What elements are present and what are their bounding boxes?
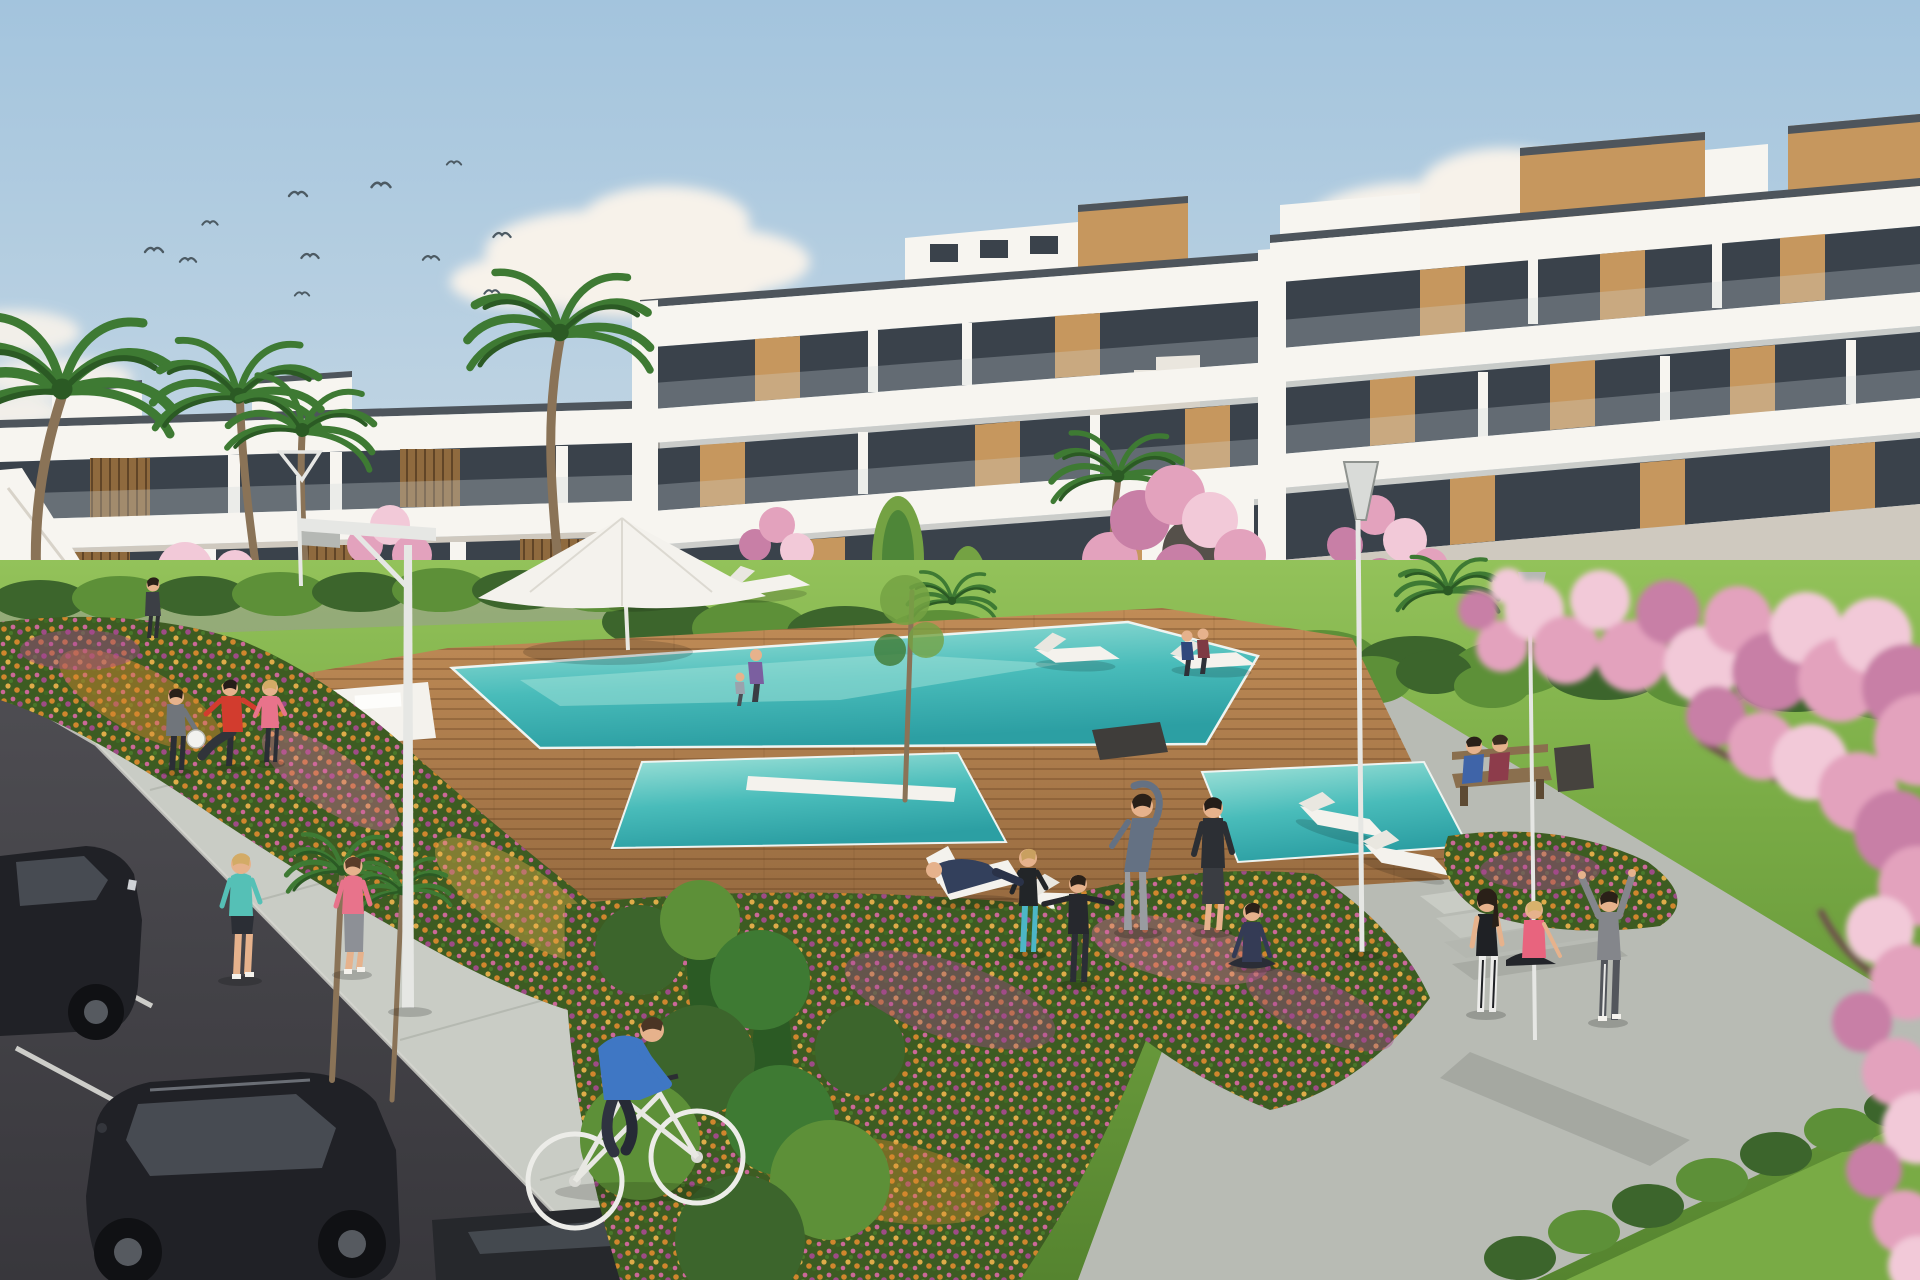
residential-complex-rendering (0, 0, 1920, 1280)
ball (187, 730, 205, 748)
pool-right (1202, 762, 1468, 862)
parked-car-left (0, 846, 142, 1040)
parked-car-bottom (86, 1072, 400, 1280)
render-stage (0, 0, 1920, 1280)
dark-seat-cube (1554, 744, 1594, 792)
